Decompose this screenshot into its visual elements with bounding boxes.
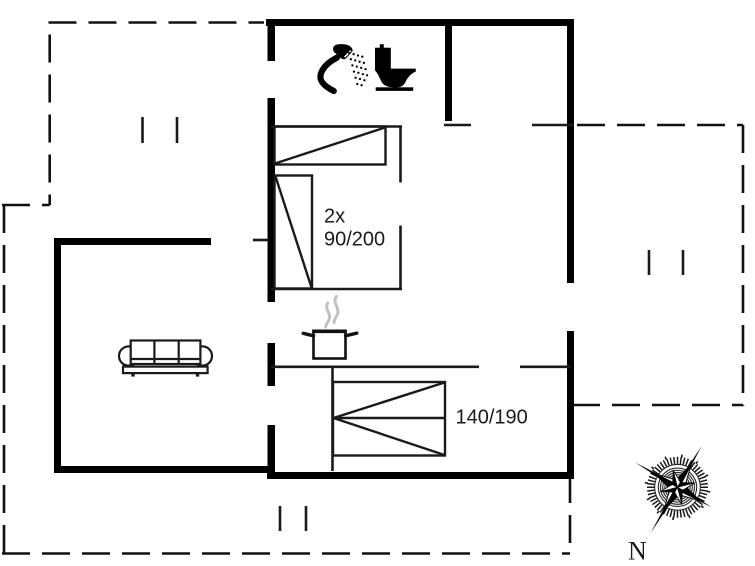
svg-text:140/190: 140/190 xyxy=(456,407,528,429)
svg-text:N: N xyxy=(628,537,647,566)
svg-text:90/200: 90/200 xyxy=(324,229,385,251)
svg-text:2x: 2x xyxy=(324,206,345,228)
